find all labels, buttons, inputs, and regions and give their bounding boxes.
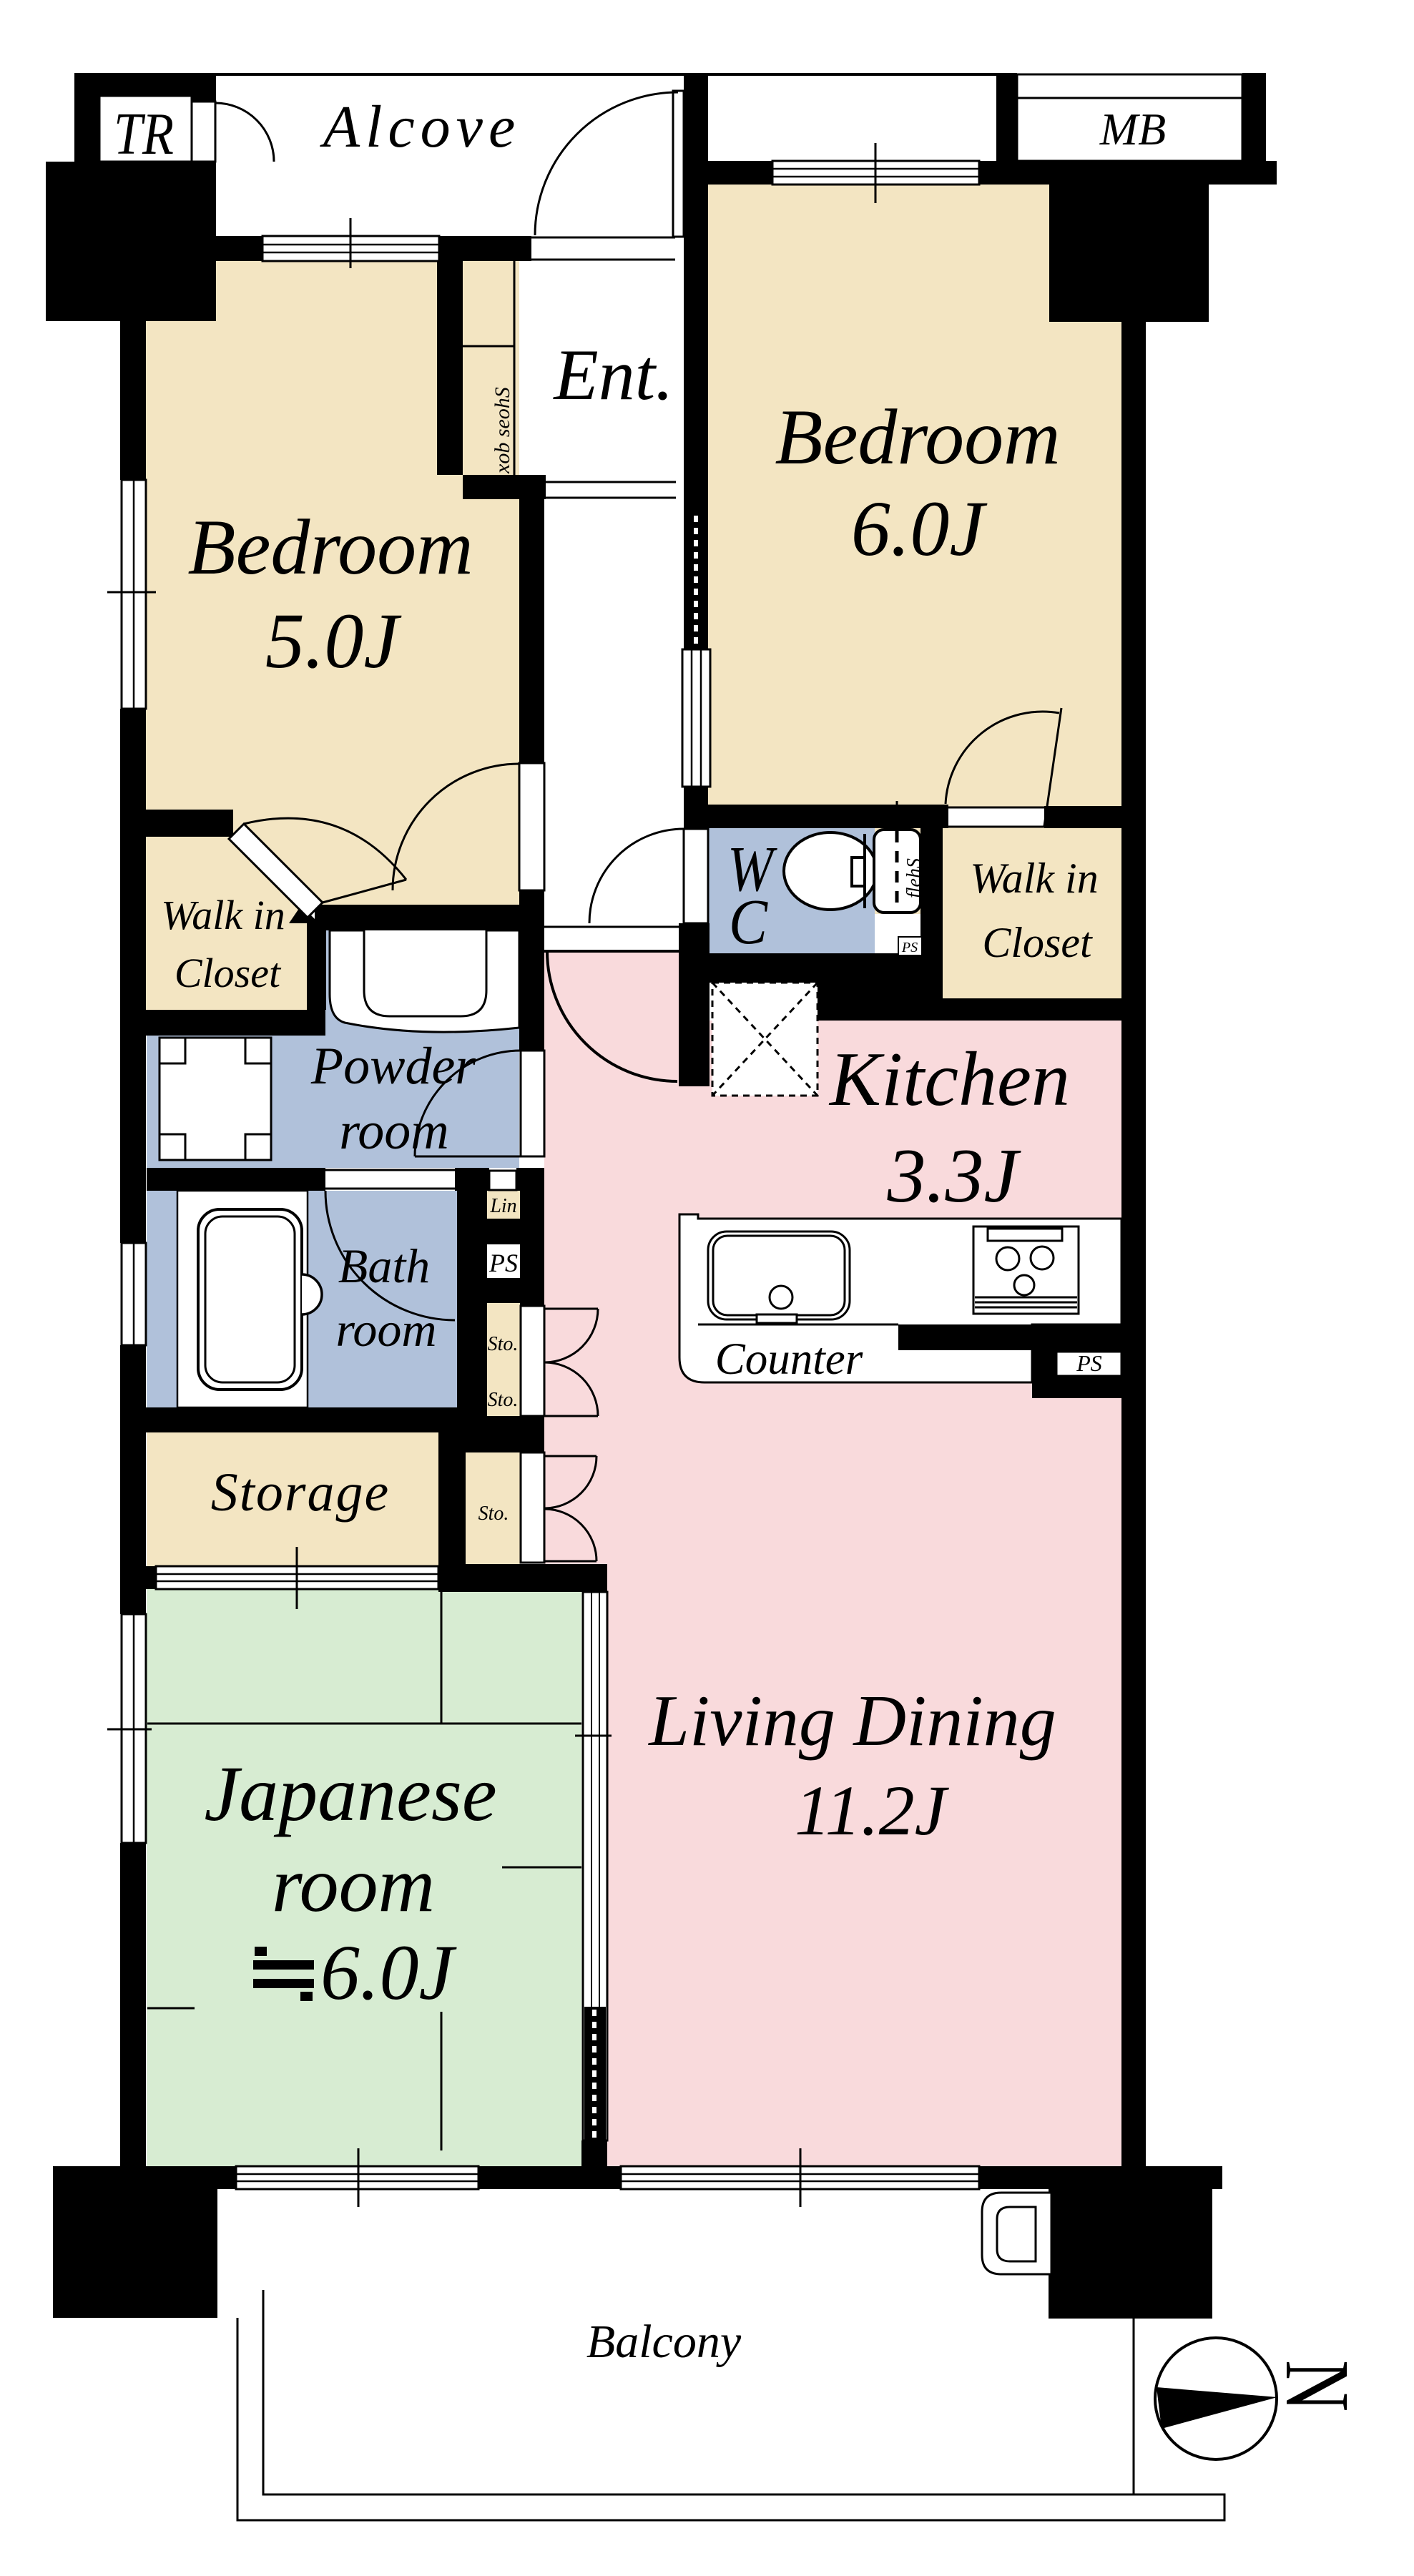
- svg-text:Lin: Lin: [489, 1195, 516, 1217]
- svg-text:Closet: Closet: [175, 950, 282, 996]
- svg-text:room: room: [272, 1841, 435, 1928]
- svg-text:room: room: [339, 1102, 449, 1161]
- svg-text:Bath: Bath: [338, 1239, 430, 1293]
- svg-text:3.3J: 3.3J: [887, 1134, 1022, 1219]
- svg-text:6.0J: 6.0J: [851, 485, 988, 572]
- svg-text:Walk in: Walk in: [161, 892, 285, 938]
- svg-text:MB: MB: [1099, 104, 1166, 154]
- svg-text:Powder: Powder: [310, 1037, 476, 1096]
- svg-text:Bedroom: Bedroom: [775, 393, 1060, 481]
- svg-text:C: C: [729, 887, 768, 958]
- svg-text:Storage: Storage: [211, 1462, 390, 1523]
- svg-text:11.2J: 11.2J: [795, 1771, 950, 1850]
- svg-text:Bedroom: Bedroom: [187, 503, 473, 591]
- svg-text:Counter: Counter: [715, 1334, 863, 1384]
- svg-text:Walk in: Walk in: [970, 855, 1098, 902]
- svg-text:Kitchen: Kitchen: [828, 1037, 1070, 1122]
- svg-text:PS: PS: [901, 940, 918, 955]
- svg-text:flehS: flehS: [903, 858, 926, 898]
- svg-text:Sto.: Sto.: [478, 1503, 509, 1525]
- svg-text:Closet: Closet: [982, 919, 1093, 966]
- svg-text:PS: PS: [488, 1249, 518, 1277]
- svg-text:Ent.: Ent.: [552, 335, 673, 416]
- svg-text:Alcove: Alcove: [320, 94, 521, 160]
- svg-text:6.0J: 6.0J: [320, 1929, 458, 2016]
- svg-text:N: N: [1267, 2360, 1368, 2412]
- svg-text:Sto.: Sto.: [488, 1333, 519, 1355]
- svg-text:TR: TR: [114, 101, 174, 167]
- svg-text:Balcony: Balcony: [586, 2316, 742, 2368]
- svg-text:5.0J: 5.0J: [265, 597, 403, 684]
- svg-text:Living Dining: Living Dining: [647, 1681, 1056, 1761]
- svg-text:Japanese: Japanese: [204, 1750, 496, 1837]
- svg-text:Sto.: Sto.: [488, 1389, 519, 1411]
- svg-text:PS: PS: [1076, 1350, 1102, 1376]
- svg-text:xob seohS: xob seohS: [491, 387, 514, 474]
- svg-text:room: room: [335, 1302, 436, 1357]
